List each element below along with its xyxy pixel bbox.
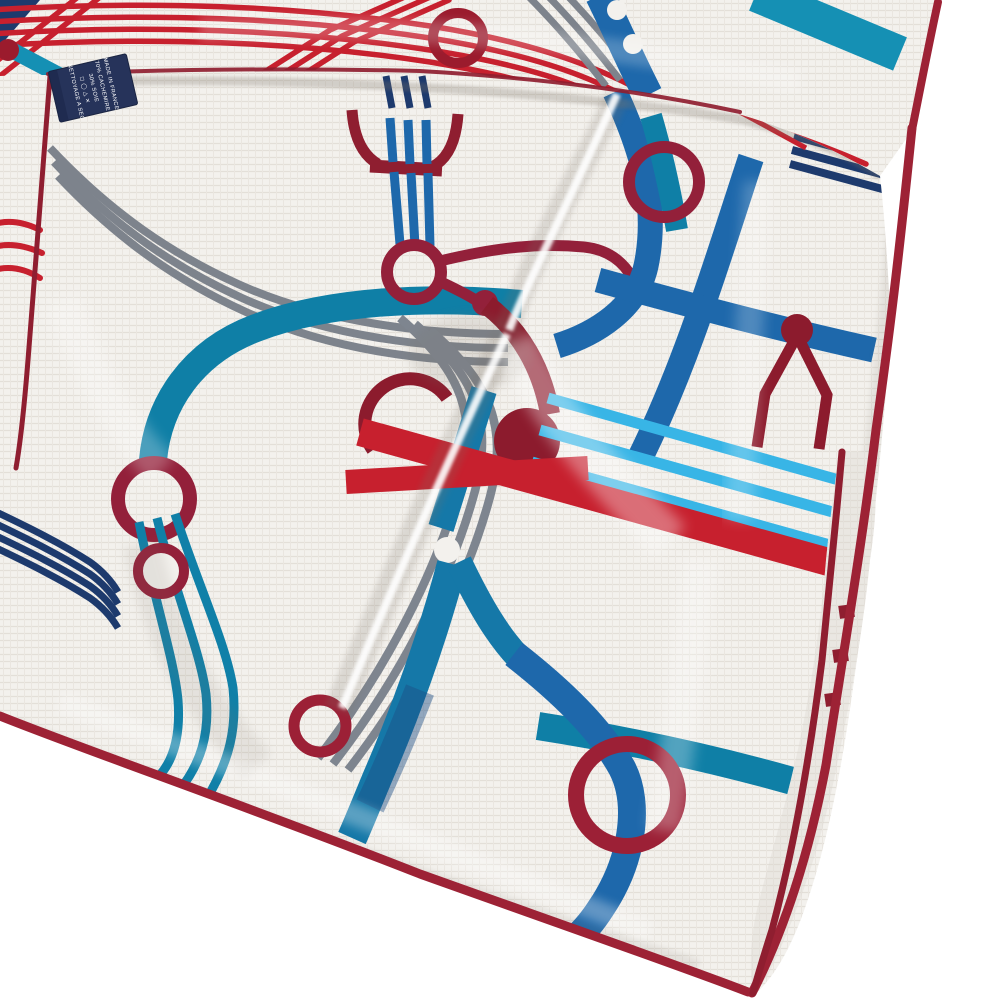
scarf-photo-svg: MADE IN FRANCE 70% CACHEMIRE 30% SOIE ◻ … [0, 0, 1000, 1000]
white-rivet-hole [607, 0, 627, 20]
scarf-product-photo: MADE IN FRANCE 70% CACHEMIRE 30% SOIE ◻ … [0, 0, 1000, 1000]
red-strap-fold [346, 468, 588, 482]
